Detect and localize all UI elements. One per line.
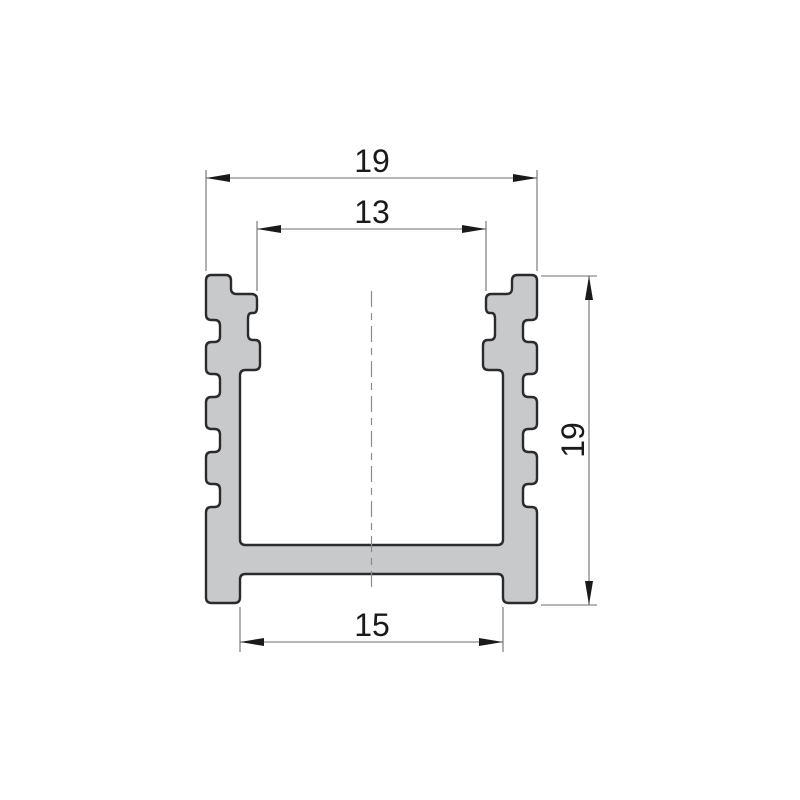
dimension-inner-width: 15 <box>240 607 503 652</box>
dimension-height: 19 <box>541 276 597 605</box>
dimension-label-opening-width: 13 <box>354 194 390 230</box>
arrowhead-left <box>206 174 230 182</box>
arrowhead-left <box>257 225 281 233</box>
dimension-label-height: 19 <box>555 422 591 458</box>
dimension-label-inner-width: 15 <box>354 607 390 643</box>
drawing-canvas: 19 13 15 19 <box>0 0 800 800</box>
dimension-opening-width: 13 <box>257 194 486 291</box>
arrowhead-right <box>479 638 503 646</box>
dimension-label-outer-width: 19 <box>354 143 390 179</box>
arrowhead-left <box>240 638 264 646</box>
profile-technical-drawing: 19 13 15 19 <box>0 0 800 800</box>
arrowhead-down <box>585 581 593 605</box>
arrowhead-right <box>513 174 537 182</box>
arrowhead-right <box>462 225 486 233</box>
arrowhead-up <box>585 276 593 300</box>
